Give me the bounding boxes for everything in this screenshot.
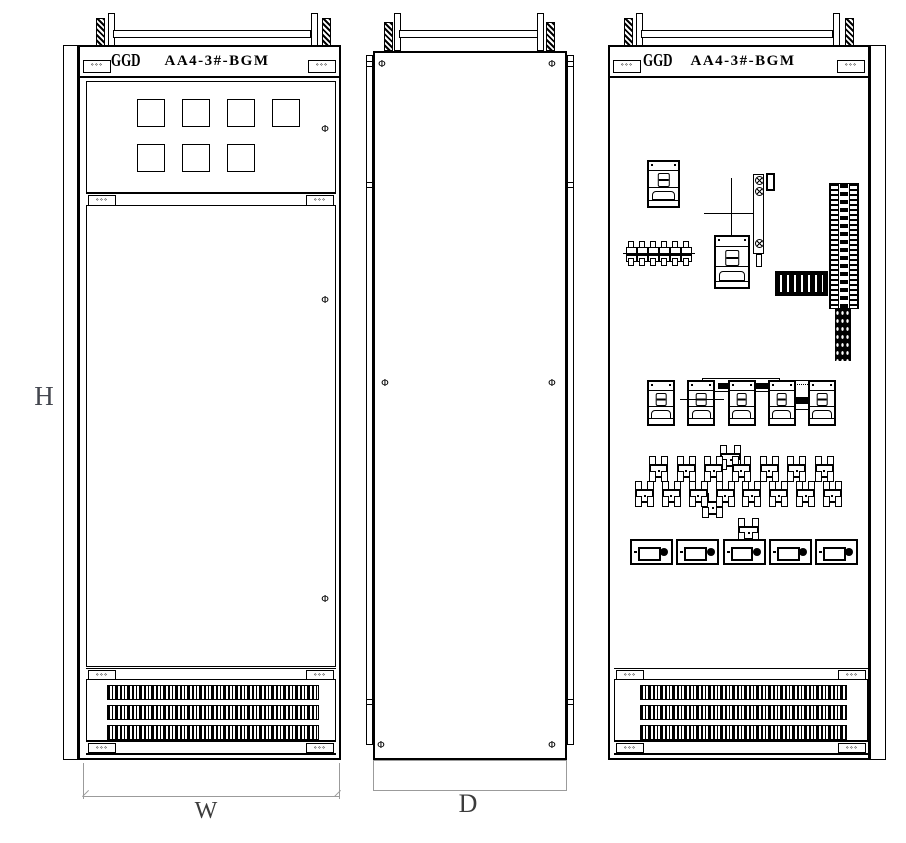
side-view: Φ Φ Φ Φ Φ Φ D [360,0,600,843]
relay [795,481,816,507]
meter-window-row [137,99,300,127]
relay [759,456,780,482]
rail-tick [568,182,573,188]
vent-slat-row [640,685,847,700]
fuse-terminal [637,241,646,266]
vent-bottom-band: ⋄⋄⋄ ⋄⋄⋄ [614,741,868,755]
bolt-symbol [755,176,764,185]
relay [731,456,752,482]
width-label: W [190,798,222,825]
hinge-plate: ⋄⋄⋄ [616,743,644,753]
meter-window [137,99,165,127]
lifting-bar [641,30,833,38]
side-panel-body [373,51,567,760]
vent-panel [86,679,336,741]
rail-tick [568,699,573,705]
block-connector [766,173,775,191]
lifting-bar [399,30,539,38]
pole-slots [780,275,823,292]
fuse-terminal [670,241,679,266]
depth-label: D [452,789,484,819]
lifting-lug [322,18,331,46]
lifting-lug [845,18,854,46]
meter-window [182,99,210,127]
lifting-lug [624,18,633,46]
rail-tick [367,61,372,67]
internal-view: ⋄⋄⋄ GGD AA4-3#-BGM ⋄⋄⋄ [600,0,906,843]
lifting-lug [546,22,555,51]
relay [741,481,762,507]
connector-row [630,539,858,561]
relay [661,481,682,507]
door-handle-symbol: Φ [321,296,329,306]
meter-window [272,99,300,127]
breaker-main [714,235,750,289]
terminal-strip-ladder [829,183,859,309]
panel-screw-symbol: Φ [378,60,386,70]
hinge-plate: ⋄⋄⋄ [838,743,866,753]
relay [814,456,835,482]
relay [786,456,807,482]
relay [688,481,709,507]
vent-panel [614,679,868,741]
terminal-centers [840,184,848,308]
nameplate-band: ⋄⋄⋄ GGD AA4-3#-BGM ⋄⋄⋄ [80,47,339,78]
cabinet-tag: AA4-3#-BGM [658,53,828,70]
front-cabinet-body: ⋄⋄⋄ GGD AA4-3#-BGM ⋄⋄⋄ Φ ⋄⋄⋄ ⋄⋄⋄ [78,45,341,760]
feeder-breaker [647,380,675,426]
connector-module [676,539,719,565]
panel-screw-symbol: Φ [381,379,389,389]
connector-module [723,539,766,565]
multipole-block [775,271,828,296]
internal-cabinet-body: ⋄⋄⋄ GGD AA4-3#-BGM ⋄⋄⋄ [608,45,870,760]
hinge-plate: ⋄⋄⋄ [88,743,116,753]
rail-tick [367,699,372,705]
front-view: ⋄⋄⋄ GGD AA4-3#-BGM ⋄⋄⋄ Φ ⋄⋄⋄ ⋄⋄⋄ [0,0,360,843]
relay-row-bottom [634,481,843,507]
terminal-cells [849,184,858,308]
hinge-plate: ⋄⋄⋄ [837,60,865,73]
front-door-edge-rail [366,55,373,745]
instrument-door: Φ [86,81,336,193]
relay [715,481,736,507]
lifting-lug [96,18,105,46]
door-handle-symbol: Φ [321,125,329,135]
rail-tick [568,61,573,67]
breaker-row [647,380,836,426]
vent-slat-row [640,705,847,720]
panel-screw-symbol: Φ [548,741,556,751]
connector-module [815,539,858,565]
cabinet-tag: AA4-3#-BGM [132,53,302,70]
hinge-plate: ⋄⋄⋄ [83,60,111,73]
connector-module [630,539,673,565]
meter-window [227,99,255,127]
terminal-cells [830,184,839,308]
feeder-breaker [808,380,836,426]
side-panel-edge [63,45,78,760]
relay [703,456,724,482]
panel-screw-symbol: Φ [377,741,385,751]
terminal-strip-tail [835,309,851,361]
relay [768,481,789,507]
panel-screw-symbol: Φ [548,379,556,389]
fuse-terminal [626,241,635,266]
feeder-breaker [687,380,715,426]
lifting-bar [113,30,311,38]
vent-bottom-band: ⋄⋄⋄ ⋄⋄⋄ [86,741,336,755]
meter-window [137,144,165,172]
strip-end [756,254,762,267]
breaker-small [647,160,680,208]
height-label: H [30,381,58,412]
fuse-terminal [659,241,668,266]
door-handle-symbol: Φ [321,595,329,605]
lifting-lug [384,22,393,51]
connector-module [769,539,812,565]
base-plinth [373,760,567,791]
relay [648,456,669,482]
hinge-plate: ⋄⋄⋄ [306,743,334,753]
fuse-terminal-row [626,241,692,266]
feeder-breaker [768,380,796,426]
side-panel-edge [870,45,886,760]
meter-window [182,144,210,172]
rail-tick [367,182,372,188]
rear-door-edge-rail [567,55,574,745]
centerline-h [680,399,724,400]
width-dimension-line [83,796,340,797]
relay [634,481,655,507]
meter-window-row [137,144,255,172]
fuse-terminal [648,241,657,266]
hinge-plate: ⋄⋄⋄ [613,60,641,73]
vent-slat-row [640,725,847,740]
busbar-support-strip [753,174,764,254]
vent-slat-row [107,725,319,740]
relay-row-top [648,456,835,482]
lifting-post [537,13,544,51]
bolt-symbol [755,239,764,248]
fuse-terminal [681,241,690,266]
nameplate-band: ⋄⋄⋄ GGD AA4-3#-BGM ⋄⋄⋄ [610,47,868,78]
feeder-breaker [728,380,756,426]
vent-slat-row [107,685,319,700]
hinge-plate: ⋄⋄⋄ [308,60,336,73]
relay [822,481,843,507]
panel-screw-symbol: Φ [548,60,556,70]
meter-window [227,144,255,172]
bolt-symbol [755,187,764,196]
main-door: Φ Φ [86,205,336,667]
vent-slat-row [107,705,319,720]
cad-drawing-canvas: ⋄⋄⋄ GGD AA4-3#-BGM ⋄⋄⋄ Φ ⋄⋄⋄ ⋄⋄⋄ [0,0,906,843]
width-extension-line [339,763,340,799]
relay [676,456,697,482]
